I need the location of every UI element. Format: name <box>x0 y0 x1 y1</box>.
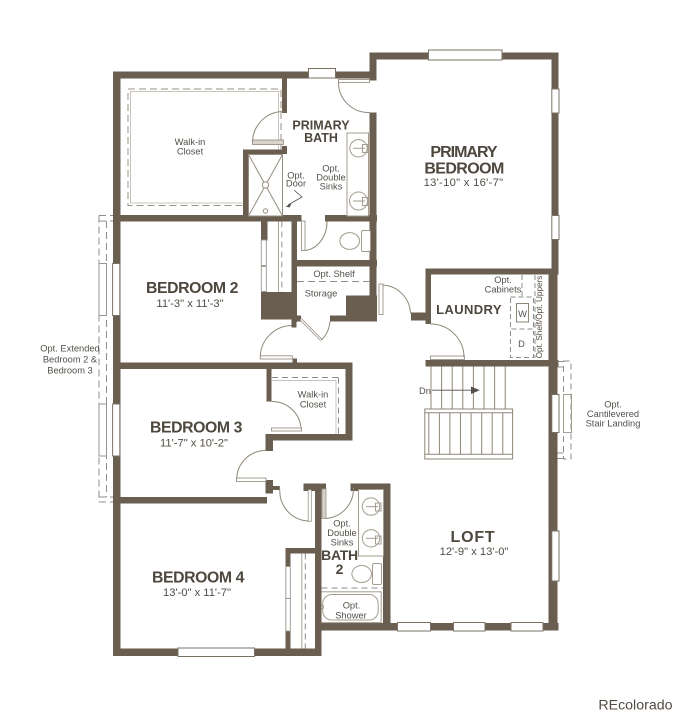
svg-text:Opt. Shelf: Opt. Shelf <box>313 269 355 279</box>
svg-text:Bedroom 2 &: Bedroom 2 & <box>43 355 98 365</box>
svg-text:REcolorado: REcolorado <box>598 698 672 714</box>
svg-text:Door: Door <box>286 179 306 189</box>
svg-text:Opt. Shelf/Opt. Uppers: Opt. Shelf/Opt. Uppers <box>535 276 544 359</box>
svg-text:Closet: Closet <box>300 400 327 410</box>
svg-text:13'-0" x 11'-7": 13'-0" x 11'-7" <box>163 587 231 599</box>
svg-text:BEDROOM 4: BEDROOM 4 <box>152 570 245 587</box>
svg-text:BEDROOM 2: BEDROOM 2 <box>146 280 239 297</box>
svg-text:Double: Double <box>327 528 356 538</box>
svg-text:Sinks: Sinks <box>320 182 343 192</box>
svg-text:Opt.: Opt. <box>494 275 512 285</box>
svg-text:LOFT: LOFT <box>451 529 496 546</box>
svg-text:Walk-in: Walk-in <box>175 137 206 147</box>
svg-text:PRIMARY: PRIMARY <box>430 144 498 161</box>
svg-text:11'-7" x 10'-2": 11'-7" x 10'-2" <box>160 438 228 450</box>
svg-text:Opt.: Opt. <box>604 400 622 410</box>
svg-text:2: 2 <box>336 561 344 577</box>
svg-text:BEDROOM 3: BEDROOM 3 <box>150 420 243 437</box>
svg-text:Walk-in: Walk-in <box>298 390 329 400</box>
svg-text:Opt.: Opt. <box>333 519 351 529</box>
svg-text:Sinks: Sinks <box>331 538 354 548</box>
svg-text:D: D <box>518 339 525 349</box>
svg-text:Cabinets: Cabinets <box>485 285 522 295</box>
svg-text:Opt. Extended: Opt. Extended <box>40 344 99 354</box>
svg-text:Bedroom 3: Bedroom 3 <box>47 366 92 376</box>
svg-text:Closet: Closet <box>177 147 204 157</box>
svg-text:Shower: Shower <box>335 611 367 621</box>
svg-text:Stair Landing: Stair Landing <box>586 419 641 429</box>
svg-text:Cantilevered: Cantilevered <box>587 409 639 419</box>
svg-text:LAUNDRY: LAUNDRY <box>436 302 502 317</box>
svg-text:BATH: BATH <box>304 131 338 145</box>
svg-text:11'-3" x 11'-3": 11'-3" x 11'-3" <box>156 298 223 310</box>
svg-text:12'-9" x 13'-0": 12'-9" x 13'-0" <box>440 546 509 558</box>
svg-text:Opt.: Opt. <box>343 601 361 611</box>
svg-text:13'-10" x 16'-7": 13'-10" x 16'-7" <box>424 177 504 189</box>
svg-text:Storage: Storage <box>305 289 338 299</box>
svg-text:W: W <box>518 309 527 319</box>
svg-text:BEDROOM: BEDROOM <box>424 161 504 178</box>
svg-text:Dn: Dn <box>419 386 431 396</box>
